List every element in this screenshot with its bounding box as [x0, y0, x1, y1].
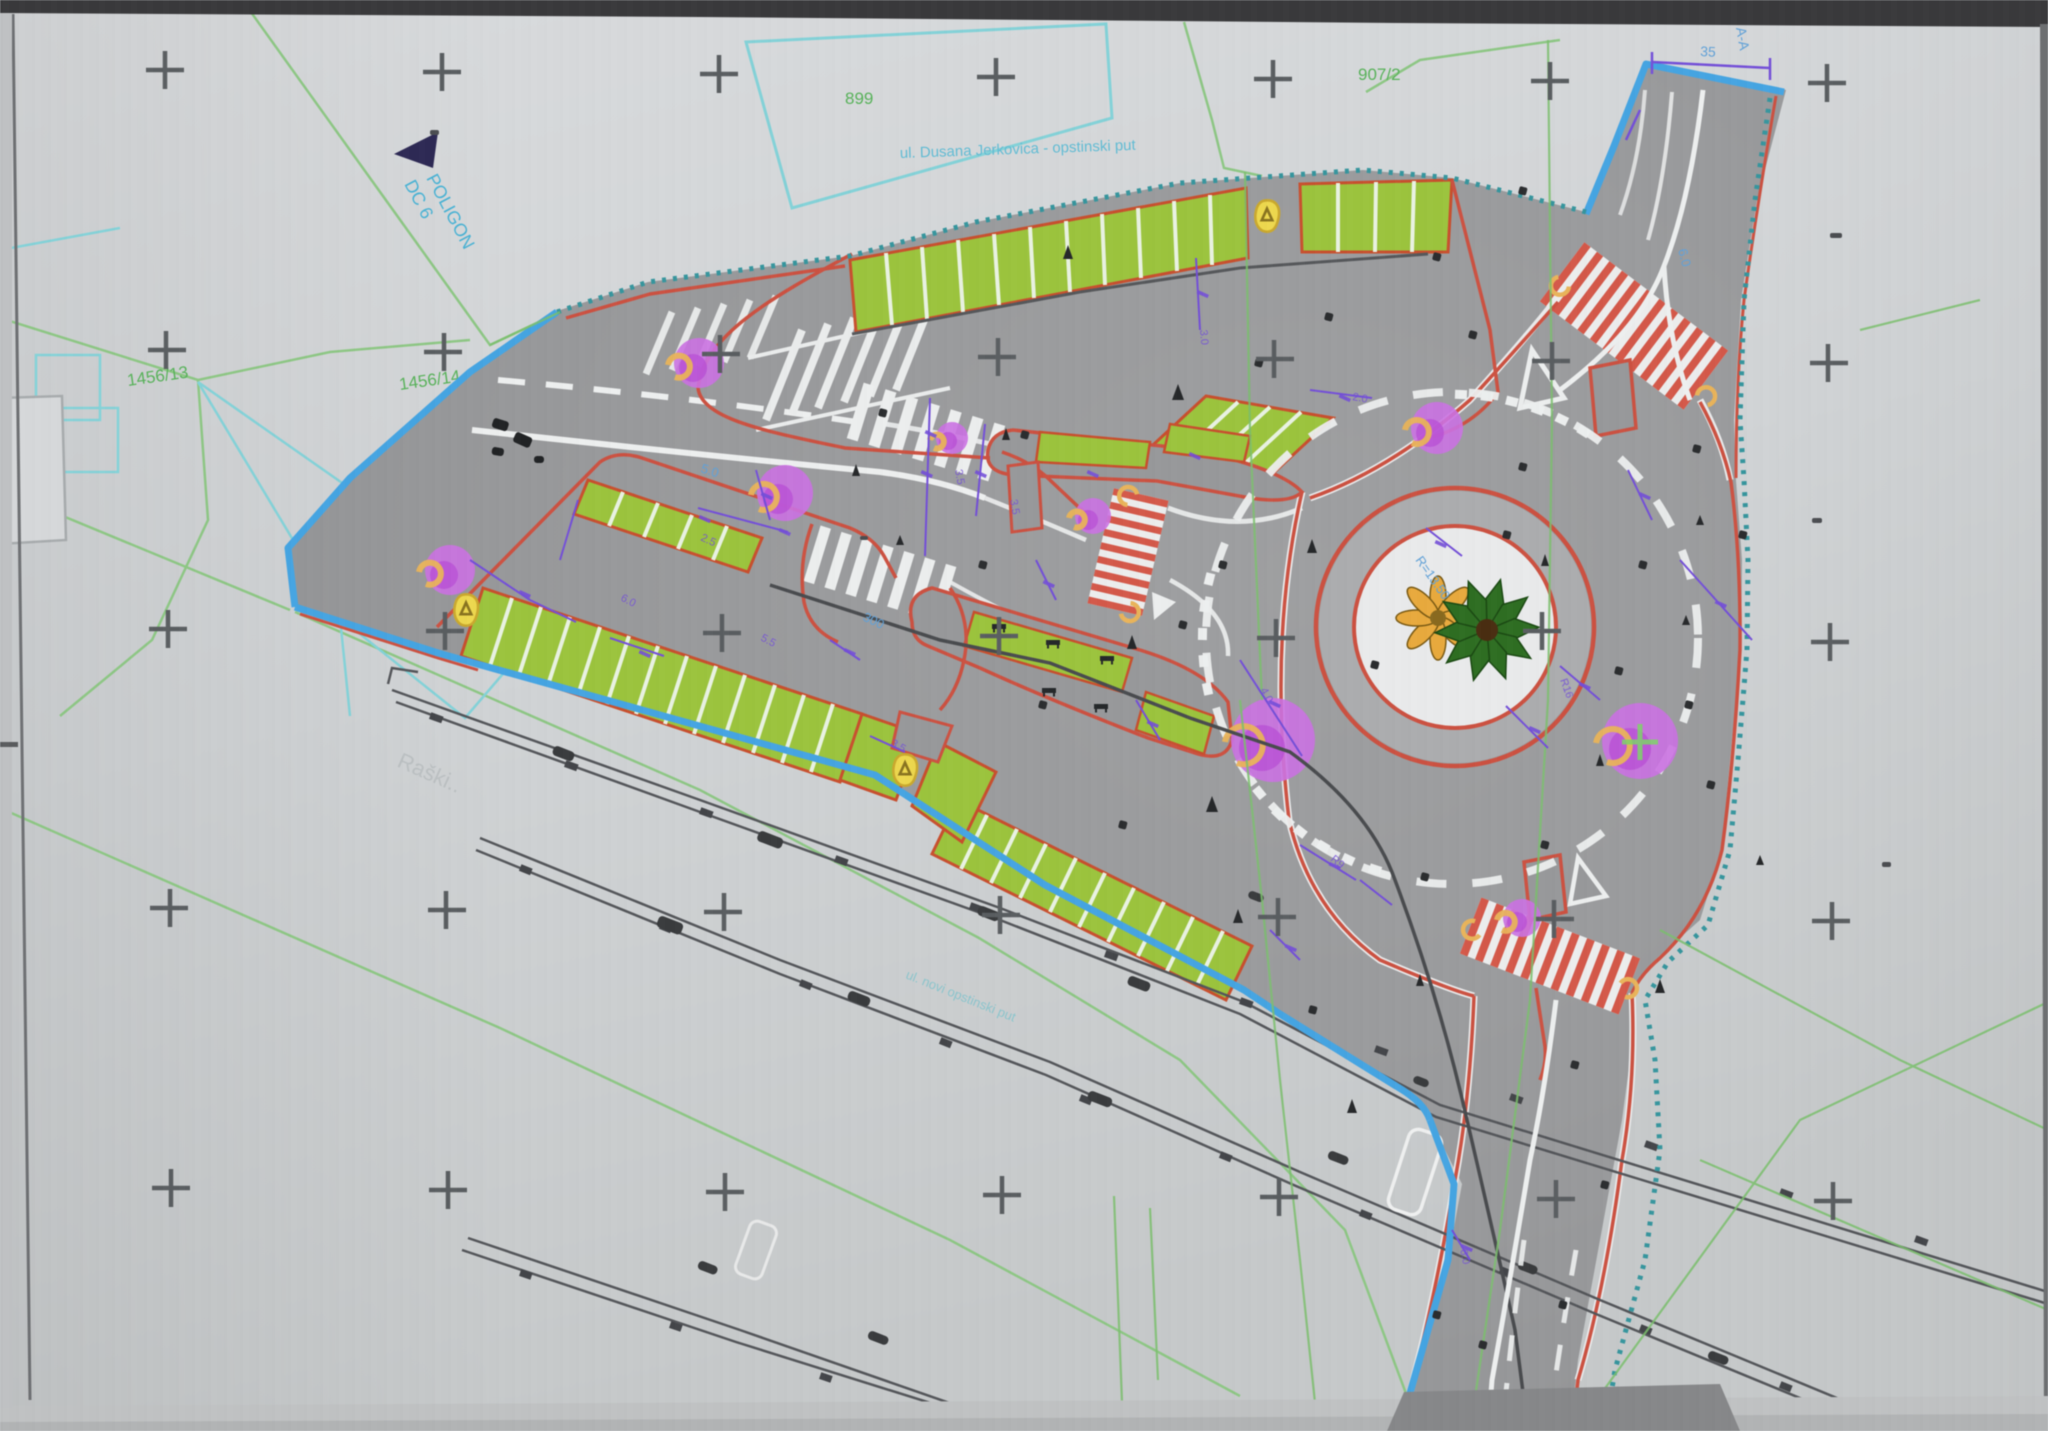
svg-text:907/2: 907/2 — [1358, 65, 1401, 84]
svg-text:35: 35 — [1700, 43, 1717, 60]
svg-text:899: 899 — [845, 89, 873, 108]
svg-text:3.0: 3.0 — [1197, 329, 1210, 345]
